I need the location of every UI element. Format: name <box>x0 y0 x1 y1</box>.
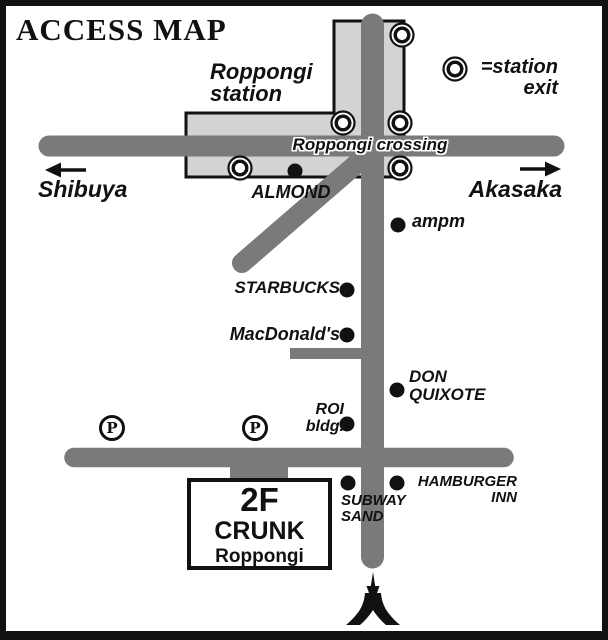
tokyo-tower-icon <box>346 572 400 625</box>
ampm-dot <box>391 218 406 233</box>
crunk-access-path <box>230 450 288 480</box>
roi-line1: ROI <box>292 402 344 419</box>
starbucks-dot <box>340 283 355 298</box>
almond-dot <box>288 164 303 179</box>
station-exit-icon <box>229 157 252 180</box>
parking-icon: P <box>99 415 125 441</box>
destination-floor: 2F <box>240 483 279 516</box>
almond-label: ALMOND <box>243 183 339 202</box>
destination-box: 2F CRUNK Roppongi <box>187 478 332 570</box>
don-quixote-line1: DON <box>409 368 486 386</box>
roi-bldg-label: ROI bldg. <box>292 402 344 436</box>
hamburger-line2: INN <box>404 490 517 506</box>
station-name-line1: Roppongi <box>210 61 313 83</box>
station-exit-icon <box>389 157 412 180</box>
station-exit-icon <box>332 112 355 135</box>
destination-name: CRUNK <box>214 519 304 544</box>
parking-icon: P <box>242 415 268 441</box>
roi-line2: bldg. <box>292 419 344 436</box>
macdonalds-label: MacDonald's <box>218 325 340 344</box>
starbucks-label: STARBUCKS <box>222 279 340 297</box>
hamburger-line1: HAMBURGER <box>404 474 517 490</box>
legend-station-exit-label: =station exit <box>452 57 558 100</box>
ampm-label: ampm <box>412 212 465 231</box>
don-quixote-line2: QUIXOTE <box>409 386 486 404</box>
side-street-stub <box>290 348 375 359</box>
hamburger-inn-dot <box>390 476 405 491</box>
subway-sand-dot <box>341 476 356 491</box>
page-title: ACCESS MAP <box>16 12 227 48</box>
station-exit-icon <box>389 112 412 135</box>
roppongi-station-label: Roppongi station <box>210 61 313 104</box>
hamburger-inn-label: HAMBURGER INN <box>404 474 517 506</box>
east-arrow-icon <box>520 162 561 177</box>
don-quixote-dot <box>390 383 405 398</box>
don-quixote-label: DON QUIXOTE <box>409 368 486 404</box>
station-exit-icon <box>391 24 414 47</box>
akasaka-direction-label: Akasaka <box>450 177 562 201</box>
subway-line2: SAND <box>341 509 406 525</box>
legend-line1: =station <box>452 57 558 78</box>
shibuya-direction-label: Shibuya <box>38 177 127 201</box>
access-map: ACCESS MAP Roppongi station =station exi… <box>0 0 608 640</box>
legend-line2: exit <box>452 78 558 99</box>
subway-line1: SUBWAY <box>341 493 406 509</box>
roppongi-crossing-label: Roppongi crossing <box>286 136 454 154</box>
macdonalds-dot <box>340 328 355 343</box>
station-name-line2: station <box>210 83 313 105</box>
subway-sand-label: SUBWAY SAND <box>341 493 406 525</box>
destination-area: Roppongi <box>215 547 304 566</box>
